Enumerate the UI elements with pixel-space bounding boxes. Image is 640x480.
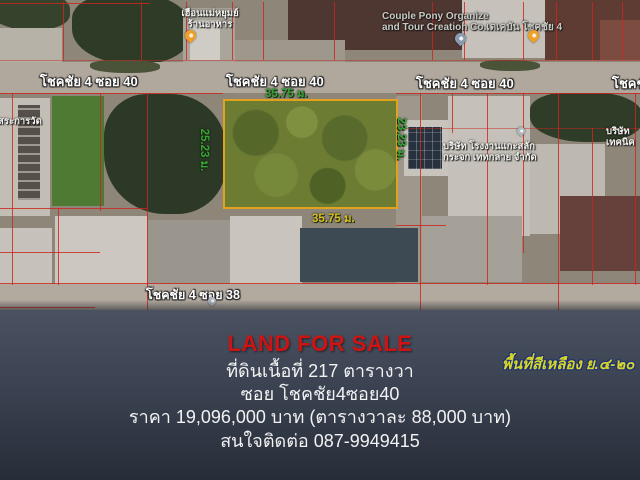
- street-label-soi40-right: โชคชัย 4 ซอย 40: [416, 73, 514, 94]
- parcel-line: [100, 93, 101, 211]
- parcel-line: [592, 2, 593, 60]
- parcel-line: [334, 2, 335, 60]
- poi-glass-company-line2: กระจก เททกลาย จำกัด: [443, 152, 537, 163]
- poi-right-clipped-line1: บริษัท: [606, 126, 635, 137]
- parcel-line: [452, 93, 453, 133]
- poi-right-clipped-line2: เทคนิค: [606, 137, 635, 148]
- plot-width-bottom-label: 35.75 ม.: [312, 210, 355, 228]
- map-roof: [560, 196, 640, 271]
- parcel-line: [558, 93, 559, 285]
- poi-couple-pony-line1: Couple Pony Organize: [382, 11, 562, 22]
- parcel-line: [58, 208, 59, 285]
- map-building: [55, 216, 147, 284]
- parcel-line: [141, 2, 142, 60]
- parcel-line: [487, 93, 488, 285]
- plot-depth-left-label: 25.23 ม.: [195, 129, 213, 172]
- parcel-line: [396, 225, 446, 226]
- map-building: [230, 216, 302, 284]
- poi-restaurant-line2: ร้านอาหาร: [165, 19, 255, 30]
- map-building: [0, 228, 52, 284]
- plot-depth-right-label: 23.23 ม.: [392, 118, 410, 161]
- parcel-line: [0, 93, 223, 94]
- parcel-line: [622, 2, 623, 60]
- poi-left-clipped-label: นยิสระการวัด: [0, 116, 42, 127]
- parcel-line: [0, 252, 100, 253]
- street-label-soi40-left: โชคชัย 4 ซอย 40: [40, 71, 138, 92]
- poi-restaurant-label: เฮือนแม่หยุมย์ ร้านอาหาร: [165, 8, 255, 30]
- poi-glass-company-label: บริษัท โรงงานแกะสลัก กระจก เททกลาย จำกัด: [443, 141, 537, 163]
- poi-restaurant-line1: เฮือนแม่หยุมย์: [165, 8, 255, 19]
- map-driveway: [235, 40, 345, 62]
- parcel-line: [63, 2, 64, 60]
- contact-text: สนใจติดต่อ 087-9949415: [0, 426, 640, 455]
- tree-shadow: [480, 60, 540, 71]
- street-label-soi40-clipped: โชคชั: [612, 73, 640, 94]
- map-building: [448, 96, 530, 236]
- poi-right-clipped-label: บริษัท เทคนิค: [606, 126, 635, 148]
- map-roof: [300, 228, 418, 282]
- zoning-note-text: พื้นที่สีเหลือง ย.๔-๒๐: [502, 352, 634, 376]
- parcel-line: [0, 283, 640, 284]
- map-bottom-shade: [0, 300, 640, 310]
- trees: [0, 0, 70, 30]
- parcel-line: [523, 93, 524, 253]
- poi-glass-company-line1: บริษัท โรงงานแกะสลัก: [443, 141, 537, 152]
- parcel-line: [592, 128, 593, 285]
- map-roof: [600, 20, 640, 60]
- map-building: [0, 28, 62, 62]
- parcel-line: [263, 2, 264, 60]
- for-sale-plot-highlight: [223, 99, 398, 209]
- map-building: [147, 220, 230, 284]
- solar-panel-roof: [408, 127, 442, 169]
- parcel-line: [420, 93, 421, 285]
- parcel-line: [0, 208, 147, 209]
- parcel-line: [0, 3, 150, 4]
- map-lawn: [52, 96, 104, 206]
- parcel-line: [635, 93, 636, 285]
- parcel-line: [147, 93, 148, 285]
- screenshot-root: 35.75 ม. 35.75 ม. 25.23 ม. 23.23 ม. โชคช…: [0, 0, 640, 480]
- parcel-line: [0, 60, 640, 61]
- plot-width-top-label: 35.75 ม.: [265, 85, 308, 103]
